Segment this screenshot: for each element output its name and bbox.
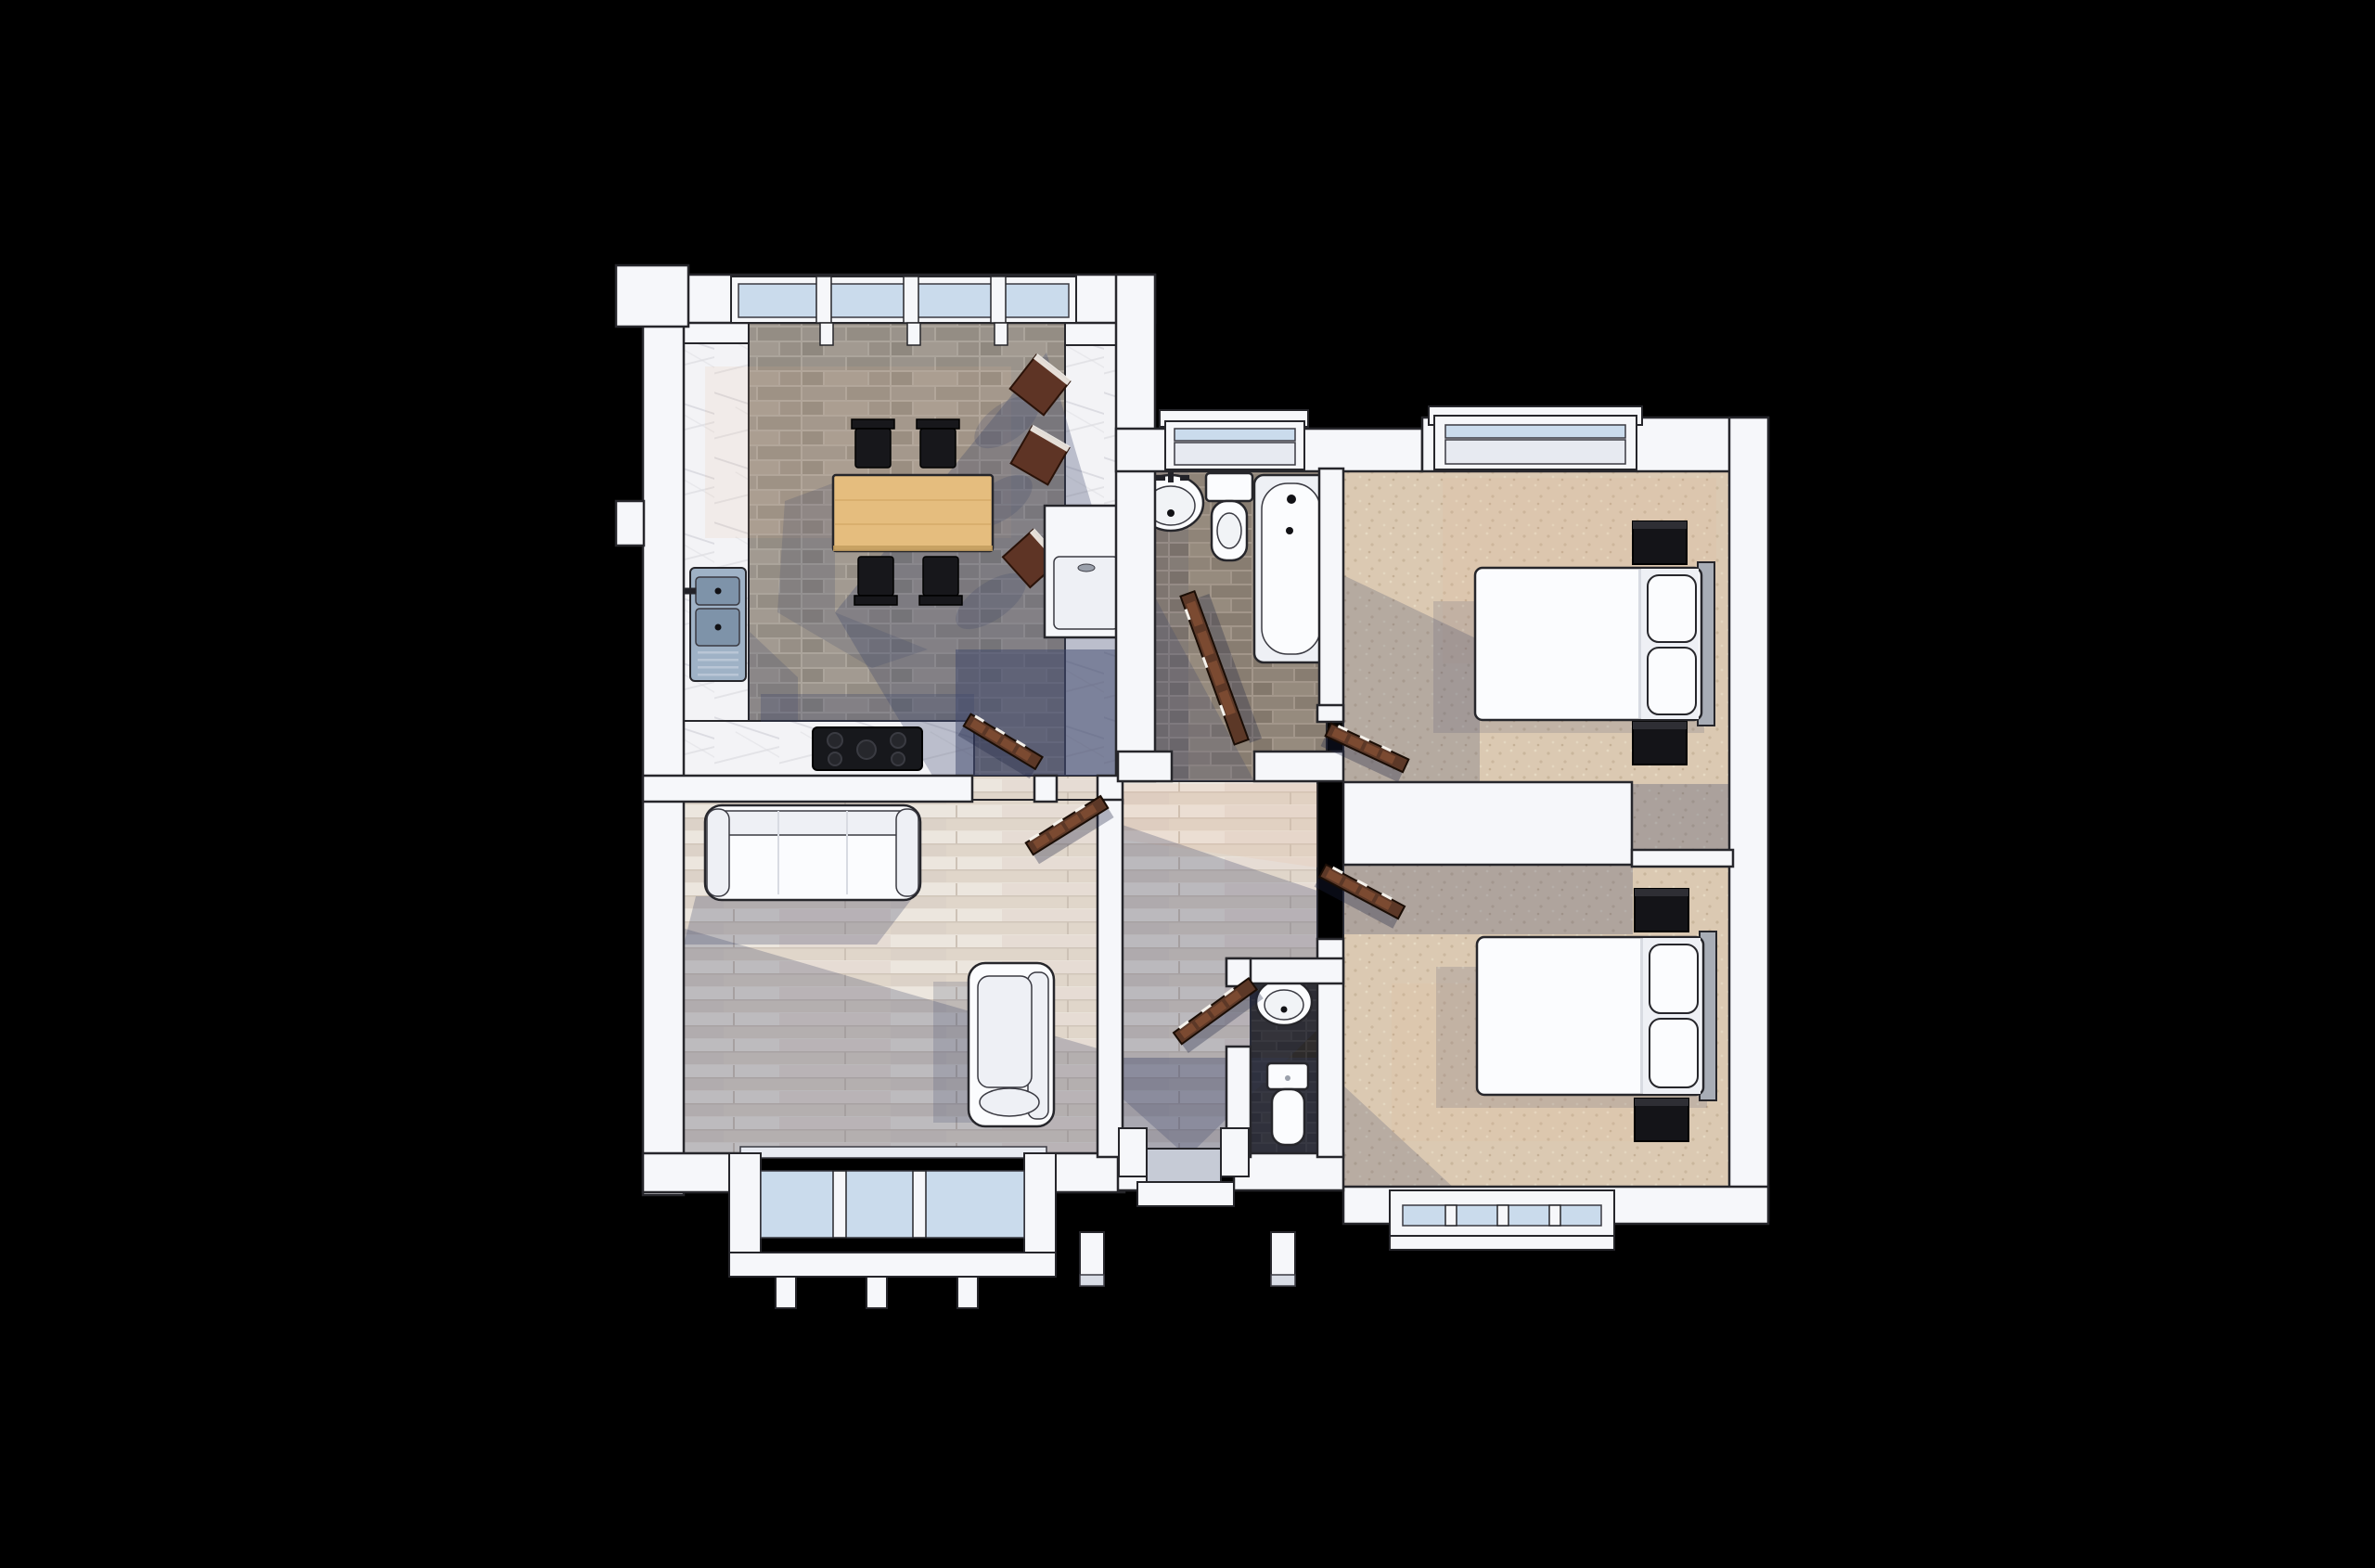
dining-chair-back [917,419,959,429]
sink-drainer-groove [698,666,738,669]
toilet-seat [1217,513,1241,548]
sink-drainer-groove [698,659,738,662]
nightstand-top-edge [1633,722,1687,729]
armchair-seat [978,976,1032,1087]
porch-step [1137,1182,1234,1206]
window-bathroom [1165,421,1304,469]
scene-stage [0,0,2375,1568]
hob-burner-center [857,740,876,759]
bath-sink-tap [1156,475,1165,481]
wc-toilet-button [1285,1075,1290,1081]
wall-bathroom-south-left [1118,752,1172,781]
pillow [1648,575,1696,642]
pillow [1650,1019,1698,1087]
window-bedroom-1 [1434,416,1637,469]
hob-burner [828,752,841,765]
dining-table-seam [835,523,991,525]
window-frame-bottom [1390,1236,1614,1250]
wall-exterior-right [1729,418,1768,1220]
bay-tab [957,1277,978,1308]
dining-chair-seat [858,557,893,596]
gas-hob [813,727,922,770]
pillow [1648,648,1696,714]
wall-kitchen-bathroom [1116,275,1155,781]
wall-living-hall [1098,800,1123,1157]
hob-burner [891,733,905,748]
nightstand-top-edge [1635,1099,1688,1106]
nightstand-top-edge [1635,889,1688,896]
window-glass [1445,425,1625,438]
sofa [705,805,920,900]
door-jamb-left [1119,1128,1147,1176]
window-bedroom-2 [1390,1190,1614,1250]
window-mullion [1549,1205,1560,1226]
dining-chair-back [852,419,894,429]
dining-chair-back [854,596,897,605]
bath-sink-tap [1180,475,1189,481]
bay-inner-sill [740,1147,1046,1158]
wall-bathroom-south-right [1254,752,1343,781]
bay-mullion [833,1171,846,1238]
wall-exterior-left [643,275,684,1195]
wc-toilet-bowl [1272,1089,1304,1145]
bay-frame-bottom [729,1253,1056,1277]
window-mullion [904,276,918,323]
sink-drainer-groove [698,674,738,676]
wall-bedroom-divider [1343,782,1632,865]
shadow-nook [1630,784,1733,852]
dining-chair-back [919,596,962,605]
nightstand-top-edge [1633,521,1687,529]
wall-bedroom-divider-step [1632,850,1733,867]
bed-fold-line [1640,939,1643,1093]
toilet-tank [1206,473,1252,501]
dining-table [833,475,993,551]
window-mullion [991,276,1006,323]
bath-sink-tap [1168,471,1174,482]
wall-pillar-left [616,501,644,546]
wall-stub-bedroom1-door [1317,705,1343,722]
door-jamb-right [1221,1128,1249,1176]
bed-fold-line [1638,570,1641,718]
dining-table-edge [833,546,993,551]
wall-bathroom-east [1319,469,1343,721]
dining-table-seam [835,499,991,501]
window-mullion [1445,1205,1457,1226]
bathtub-faucet [1287,495,1296,504]
window-post-stub [907,323,920,345]
dining-chair-seat [923,557,958,596]
sofa-arm-right [896,809,918,896]
armchair-front-cushion [980,1088,1039,1116]
bay-tab [867,1277,887,1308]
front-door-threshold [1147,1149,1221,1182]
floorplan-render-canvas [0,0,2375,1568]
window-post-stub [995,323,1008,345]
sink-drainer-groove [698,651,738,654]
appliance-handle [1078,564,1095,572]
dining-chair-seat [920,429,956,468]
sink-drain-2 [715,624,722,631]
window-post-stub [820,323,833,345]
bathtub-drain [1286,527,1293,534]
sofa-arm-left [707,809,729,896]
kitchen-sink-unit [685,568,746,681]
sink-drain-1 [715,588,722,595]
armchair [969,963,1054,1126]
bath-sink-drain [1167,509,1175,517]
shadow-sofa [684,896,914,945]
porch-post-foot [1271,1275,1295,1286]
wc-sink-drain [1281,1007,1288,1013]
porch-post-foot [1080,1275,1104,1286]
wall-kitchen-living-divider [643,776,972,802]
pillow [1650,945,1698,1013]
window-mullion [816,276,831,323]
hob-burner [828,733,842,748]
bay-mullion [913,1171,926,1238]
hob-burner [892,752,905,765]
bathtub-inner [1262,483,1320,654]
bay-glass [761,1171,1024,1238]
sofa-seat-seam [777,811,779,894]
wall-jamb-kitchen-living [1034,776,1057,802]
wc-sink-inner [1265,990,1303,1020]
bay-tab [776,1277,796,1308]
window-mullion [1497,1205,1508,1226]
dining-chair-seat [855,429,891,468]
wall-hall-bottom-right [1234,1153,1343,1190]
window-sill [1175,443,1295,465]
window-glass [1175,429,1295,441]
wall-corner-block-topleft [616,265,688,327]
window-sill [1445,440,1625,464]
sofa-seat-seam [846,811,848,894]
sofa-back-cushion [714,811,911,835]
sink-faucet [685,588,696,594]
